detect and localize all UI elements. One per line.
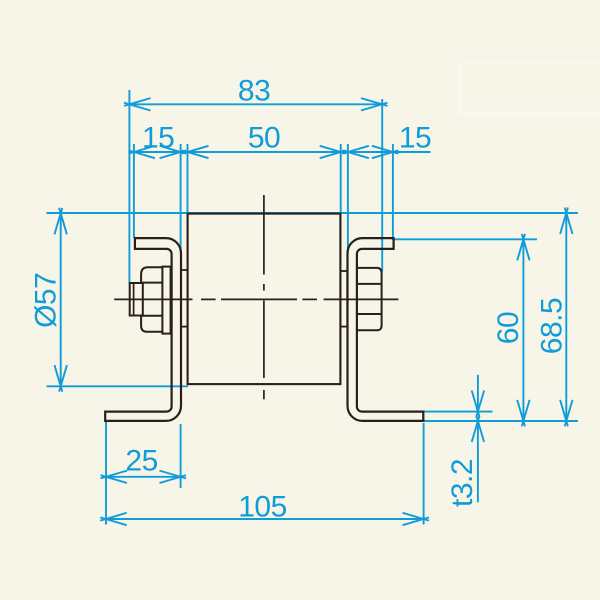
svg-text:15: 15 <box>399 122 431 155</box>
svg-text:83: 83 <box>238 74 270 107</box>
svg-text:105: 105 <box>238 491 287 524</box>
svg-text:50: 50 <box>248 122 280 155</box>
svg-text:t3.2: t3.2 <box>446 459 479 507</box>
svg-text:25: 25 <box>125 444 157 477</box>
svg-text:68.5: 68.5 <box>536 298 569 354</box>
svg-text:60: 60 <box>492 312 525 344</box>
svg-text:15: 15 <box>142 122 174 155</box>
svg-text:Ø57: Ø57 <box>30 273 63 328</box>
